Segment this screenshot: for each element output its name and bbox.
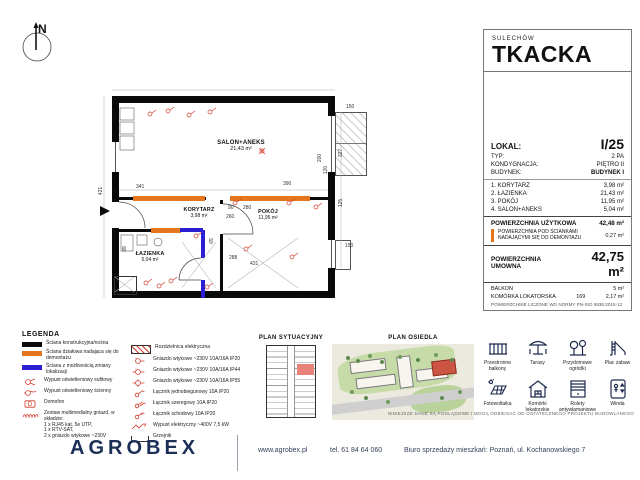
power-outlet-icon	[131, 423, 149, 431]
legend-label: Wypust elektryczny ~400V 7,5 kW	[153, 423, 229, 429]
room-name: 2. ŁAZIENKA	[491, 191, 527, 197]
phone-number: tel. 61 84 64 060	[330, 447, 382, 454]
divider	[484, 216, 631, 217]
legend-label: Łącznik schodowy 10A IP20	[153, 412, 215, 418]
typ-label: TYP:	[491, 154, 504, 160]
feature-label: Przydomowe ogródki	[558, 361, 597, 372]
playground-slide-icon	[606, 336, 630, 360]
feature-balconies: Przestronne balkony	[478, 336, 517, 372]
estate-plan-title: PLAN OSIEDLA	[368, 335, 458, 341]
legend-label: Ściana działowa nadająca się do demontaż…	[46, 350, 128, 361]
svg-text:D: D	[28, 402, 33, 408]
legend-item: Zestaw multimedialny gniazd, w składzie:…	[22, 411, 128, 439]
legend-label: Ściana z możliwością zmiany lokalizacji	[46, 364, 128, 375]
legend-label: Gniazdo wtykowe ~230V 10A/16A IP55	[153, 379, 240, 385]
room-area: 3,98 m²	[604, 183, 624, 189]
dimension-label: 421	[98, 187, 104, 195]
legend-item: Łącznik schodowy 10A IP20	[131, 412, 259, 420]
demontaz-value: 0,27 m²	[605, 233, 624, 239]
elevator-icon	[606, 377, 630, 401]
legend-item: Wypust oświetleniowy sufitowy	[22, 378, 128, 386]
room-name: 4. SALON+ANEKS	[491, 207, 542, 213]
room-area: 3,98 m²	[176, 213, 222, 219]
legend-title: LEGENDA	[22, 331, 128, 338]
legend-item: Ściana konstrukcyjna/nośna	[22, 341, 128, 347]
room-label-pokoj: POKÓJ 11,95 m²	[246, 209, 290, 221]
uzytkowa-value: 42,48 m²	[599, 220, 624, 227]
feature-pictograms: Przestronne balkony Tarasy Przydomowe og…	[478, 336, 637, 413]
movable-wall-swatch	[22, 365, 42, 370]
legend-label: Gniazdo wtykowe ~230V 10A/16A IP20	[153, 357, 240, 363]
legend-label: Zestaw multimedialny gniazd, w składzie:…	[44, 411, 128, 439]
highlighted-building	[431, 359, 457, 377]
budynek-row: BUDYNEK: BUDYNEK I	[484, 169, 631, 177]
dimension-label: 125	[338, 199, 344, 207]
feature-label: Fotowoltaika	[478, 402, 517, 408]
terrace-icon	[526, 336, 550, 360]
highlighted-unit	[297, 364, 314, 375]
legend-label: Gniazdo wtykowe ~230V 10A/16A IP44	[153, 368, 240, 374]
dimension-label: 120	[323, 166, 329, 174]
balkon-value: 5 m²	[613, 286, 624, 292]
dimension-label: 341	[136, 184, 144, 190]
socket-icon	[131, 368, 149, 376]
uzytkowa-row: POWIERZCHNIA UŻYTKOWA 42,48 m²	[484, 219, 631, 228]
room-area: 5,04 m²	[604, 207, 624, 213]
switchboard-icon	[131, 345, 151, 354]
title-block-header: SULECHÓW TKACKA	[484, 30, 631, 72]
switch-icon	[131, 401, 149, 409]
socket-icon	[131, 357, 149, 365]
floorplan-offer-sheet: N	[0, 0, 640, 480]
intercom-icon: D	[22, 400, 40, 408]
multimedia-set-icon	[22, 411, 40, 419]
legend-label: Domofon	[44, 400, 64, 406]
demontaz-row: POWIERZCHNIA POD ŚCIANKAMI NADAJĄCYMI SI…	[484, 228, 631, 243]
typ-row: TYP: 2 PA	[484, 153, 631, 161]
legend-label: Ściana konstrukcyjna/nośna	[46, 341, 108, 347]
umowna-label: POWIERZCHNIA UMOWNA	[491, 256, 572, 270]
dimension-label: 150	[345, 243, 353, 249]
room-name: 1. KORYTARZ	[491, 183, 530, 189]
building-location-plan	[266, 345, 316, 418]
dimension-label: 280	[243, 205, 251, 211]
lokal-row: LOKAL: I/25	[484, 135, 631, 153]
solar-panel-icon	[486, 377, 510, 401]
dimension-label: 99	[122, 246, 128, 252]
room-row: 1. KORYTARZ 3,98 m²	[484, 182, 631, 190]
dimension-label: 288	[229, 255, 237, 261]
title-block: SULECHÓW TKACKA LOKAL: I/25 TYP: 2 PA KO…	[483, 29, 632, 311]
switch-icon	[131, 412, 149, 420]
umowna-value: 42,75 m²	[572, 249, 624, 279]
lokal-label: LOKAL:	[491, 142, 521, 151]
feature-label: Przestronne balkony	[478, 361, 517, 372]
dimension-label: 200	[317, 154, 323, 162]
agrobex-logo: AGROBEX	[70, 437, 199, 460]
dimension-label: 431	[250, 261, 258, 267]
room-label-korytarz: KORYTARZ 3,98 m²	[176, 207, 222, 219]
room-area: 11,95 m²	[246, 215, 290, 221]
legend-electrical: Rozdzielnica elektryczna Gniazdo wtykowe…	[131, 342, 259, 442]
balkon-row: BALKON 5 m²	[484, 285, 631, 293]
legend-item: Gniazdo wtykowe ~230V 10A/16A IP20	[131, 357, 259, 365]
legend-item: Łącznik jednobiegunowy 10A IP20	[131, 390, 259, 398]
ceiling-light-icon	[22, 378, 40, 386]
divider	[484, 179, 631, 180]
room-name: 3. POKÓJ	[491, 199, 518, 205]
legend-item: Gniazdo wtykowe ~230V 10A/16A IP44	[131, 368, 259, 376]
legend-label: Łącznik szeregowy 10A IP20	[153, 401, 217, 407]
estate-map	[332, 344, 474, 420]
room-row: 2. ŁAZIENKA 21,43 m²	[484, 190, 631, 198]
feature-label: Plac zabaw	[598, 361, 637, 367]
legend-item: Łącznik szeregowy 10A IP20	[131, 401, 259, 409]
socket-icon	[131, 379, 149, 387]
feature-playground: Plac zabaw	[598, 336, 637, 372]
budynek-value: BUDYNEK I	[591, 170, 624, 176]
norm-note: POWIERZCHNIE LICZONE WG NORMY PN-ISO 983…	[484, 301, 631, 310]
legend-item: Ściana z możliwością zmiany lokalizacji	[22, 364, 128, 375]
legend-label: Wypust oświetleniowy sufitowy	[44, 378, 112, 384]
title-block-body: LOKAL: I/25 TYP: 2 PA KONDYGNACJA: PIĘTR…	[484, 135, 631, 310]
wall-light-icon	[22, 389, 40, 397]
divider	[484, 245, 631, 246]
komorka-row: KOMÓRKA LOKATORSKA 169 2,17 m²	[484, 293, 631, 301]
kondygnacja-label: KONDYGNACJA:	[491, 162, 538, 168]
investment-name: TKACKA	[492, 43, 623, 66]
room-area: 21,43 m²	[600, 191, 624, 197]
kondygnacja-row: KONDYGNACJA: PIĘTRO II	[484, 161, 631, 169]
feature-security-blinds: Rolety antywłamaniowe	[558, 377, 597, 413]
legend-item: D Domofon	[22, 400, 128, 408]
room-area: 21,43 m²	[198, 146, 284, 152]
budynek-label: BUDYNEK:	[491, 170, 522, 176]
legend-item: Wypust elektryczny ~400V 7,5 kW	[131, 423, 259, 431]
lokal-value: I/25	[601, 136, 624, 152]
legend-item: Rozdzielnica elektryczna	[131, 345, 259, 354]
feature-label: Winda	[598, 402, 637, 408]
dimension-label: 327	[338, 149, 344, 157]
dimension-label: 260	[226, 214, 234, 220]
garden-trees-icon	[566, 336, 590, 360]
structural-wall-swatch	[22, 342, 42, 347]
room-row: 4. SALON+ANEKS 5,04 m²	[484, 206, 631, 214]
legend-label: Wypust oświetleniowy ścienny	[44, 389, 111, 395]
legend-item: Wypust oświetleniowy ścienny	[22, 389, 128, 397]
feature-photovoltaics: Fotowoltaika	[478, 377, 517, 413]
building-units-left	[267, 346, 288, 417]
feature-terraces: Tarasy	[518, 336, 557, 372]
dimension-label: 65	[209, 238, 215, 244]
legend-label: Łącznik jednobiegunowy 10A IP20	[153, 390, 229, 396]
dimension-label: 390	[283, 181, 291, 187]
storage-house-icon	[526, 377, 550, 401]
komorka-label: KOMÓRKA LOKATORSKA	[491, 294, 556, 300]
room-area: 5,04 m²	[130, 257, 170, 263]
trees	[346, 356, 350, 360]
divider	[484, 282, 631, 283]
demontaz-label: POWIERZCHNIA POD ŚCIANKAMI NADAJĄCYMI SI…	[498, 230, 590, 242]
room-area: 11,95 m²	[601, 199, 624, 205]
site-plan-title: PLAN SYTUACYJNY	[246, 335, 336, 341]
feature-label: Tarasy	[518, 361, 557, 367]
switch-icon	[131, 390, 149, 398]
building-units-right	[294, 346, 315, 417]
typ-value: 2 PA	[611, 154, 624, 160]
balkon-label: BALKON	[491, 286, 513, 292]
sales-office-address: Biuro sprzedaży mieszkań: Poznań, ul. Ko…	[404, 447, 585, 454]
feature-elevator: Winda	[598, 377, 637, 413]
website-link[interactable]: www.agrobex.pl	[258, 447, 307, 454]
komorka-number: 169	[576, 294, 585, 300]
footer-divider	[237, 435, 238, 471]
uzytkowa-label: POWIERZCHNIA UŻYTKOWA	[491, 220, 576, 227]
demolition-swatch	[491, 229, 494, 242]
legend-label: Rozdzielnica elektryczna	[155, 345, 210, 351]
legend: LEGENDA Ściana konstrukcyjna/nośna Ścian…	[22, 331, 128, 439]
komorka-value: 2,17 m²	[606, 294, 624, 300]
umowna-row: POWIERZCHNIA UMOWNA 42,75 m²	[484, 248, 631, 280]
balcony-icon	[486, 336, 510, 360]
disclaimer-text: NINIEJSZE DANE SĄ POGLĄDOWE I MOGĄ ODBIE…	[368, 411, 634, 416]
feature-gardens: Przydomowe ogródki	[558, 336, 597, 372]
legend-item: Gniazdo wtykowe ~230V 10A/16A IP55	[131, 379, 259, 387]
roller-blinds-icon	[566, 377, 590, 401]
dimension-label: 150	[346, 104, 354, 110]
feature-storage-units: Komórki lokatorskie	[518, 377, 557, 413]
kondygnacja-value: PIĘTRO II	[597, 162, 624, 168]
dimension-label: 90	[228, 205, 234, 211]
room-row: 3. POKÓJ 11,95 m²	[484, 198, 631, 206]
room-label-salon: SALON+ANEKS 21,43 m²	[198, 140, 284, 152]
legend-item: Ściana działowa nadająca się do demontaż…	[22, 350, 128, 361]
demolition-wall-swatch	[22, 351, 42, 356]
room-label-lazienka: ŁAZIENKA 5,04 m²	[130, 251, 170, 263]
